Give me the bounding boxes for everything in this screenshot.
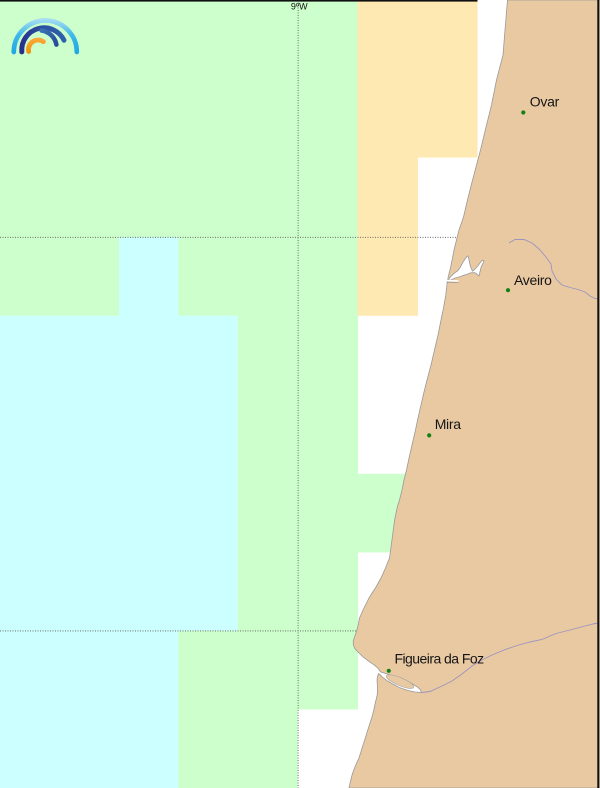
svg-text:Figueira da Foz: Figueira da Foz	[395, 650, 485, 666]
svg-text:Aveiro: Aveiro	[514, 272, 552, 288]
svg-text:9ºW: 9ºW	[291, 2, 308, 12]
svg-text:Mira: Mira	[435, 416, 462, 432]
svg-text:Ovar: Ovar	[530, 94, 560, 110]
